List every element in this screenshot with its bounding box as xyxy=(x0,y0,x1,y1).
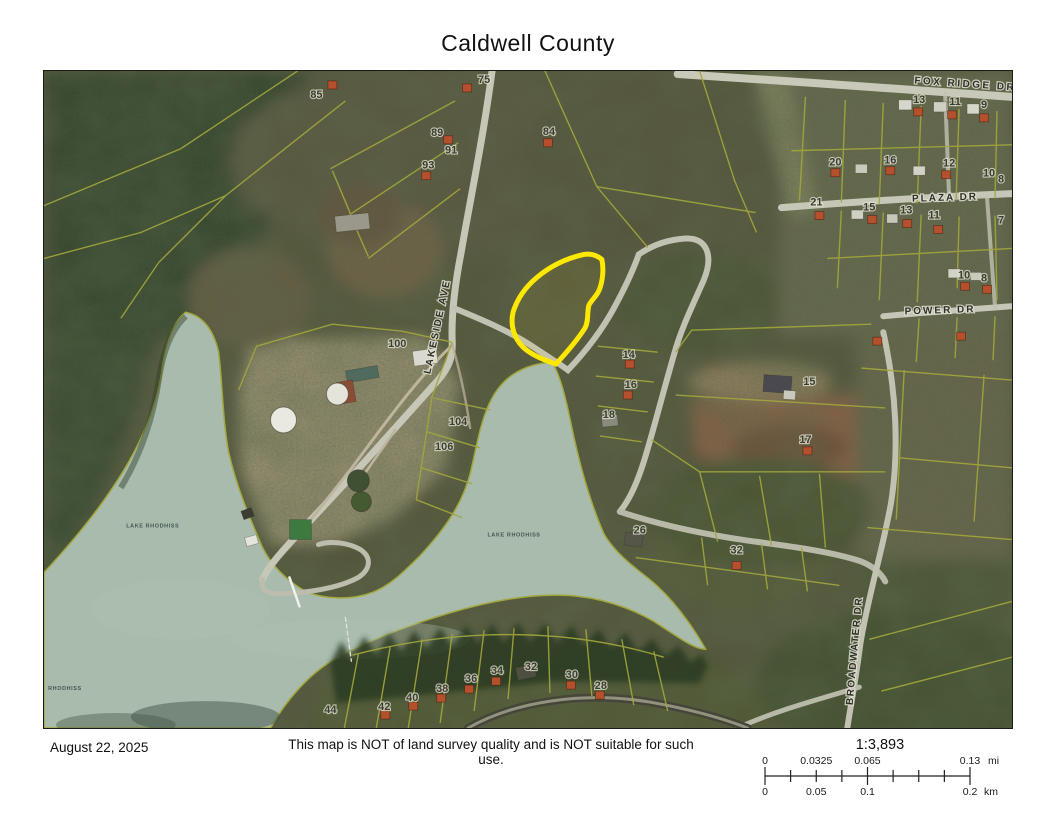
parcel-number-label: 8 xyxy=(998,174,1004,186)
house-icon xyxy=(623,391,632,399)
map-image: 8575899193841001041061311920161210821151… xyxy=(44,71,1012,728)
parcel-number-label: 13 xyxy=(900,205,912,217)
house-icon xyxy=(983,285,992,293)
parcel-number-label: 12 xyxy=(943,158,955,170)
parcel-number-label: 93 xyxy=(422,160,434,172)
scale-km-label: 0.05 xyxy=(806,786,827,798)
parcel-number-label: 7 xyxy=(998,215,1004,227)
parcel-number-label: 104 xyxy=(449,416,468,428)
house-icon xyxy=(914,108,923,116)
scale-bar: 00.03250.0650.13mi00.050.10.2km xyxy=(757,752,1017,807)
parcel-number-label: 100 xyxy=(388,338,406,350)
building xyxy=(289,520,311,540)
scale-mile-label: 0 xyxy=(762,755,768,767)
parcel-number-label: 36 xyxy=(465,673,477,685)
house-icon xyxy=(444,136,453,144)
parcel-number-label: 15 xyxy=(803,376,815,388)
parcel-number-label: 40 xyxy=(406,692,418,704)
parcel-number-label: 91 xyxy=(445,145,457,157)
parcel-number-label: 44 xyxy=(324,704,337,716)
house-icon xyxy=(625,360,634,368)
parcel-number-label: 15 xyxy=(863,202,875,214)
storage-tank xyxy=(271,407,297,433)
house-icon xyxy=(803,447,812,455)
parcel-number-label: 32 xyxy=(525,661,537,673)
parcel-number-label: 75 xyxy=(478,74,490,86)
house-icon xyxy=(886,167,895,175)
map-date: August 22, 2025 xyxy=(50,740,148,755)
building xyxy=(887,214,898,223)
parcel-number-label: 18 xyxy=(603,409,615,421)
house-icon xyxy=(903,220,912,228)
house-icon xyxy=(732,562,741,570)
parcel-number-label: 11 xyxy=(928,210,940,222)
parcel-number-label: 14 xyxy=(623,349,636,361)
building xyxy=(967,104,979,114)
house-icon xyxy=(873,337,882,345)
house-icon xyxy=(543,139,552,147)
building xyxy=(899,100,912,110)
house-icon xyxy=(328,81,337,89)
building xyxy=(783,390,796,400)
parcel-number-label: 16 xyxy=(884,155,896,167)
house-icon xyxy=(942,171,951,179)
parcel-number-label: 34 xyxy=(491,665,504,677)
map-frame: 8575899193841001041061311920161210821151… xyxy=(43,70,1013,729)
parcel-number-label: 13 xyxy=(913,94,925,106)
parcel-number-label: 30 xyxy=(566,669,578,681)
building xyxy=(934,102,947,112)
house-icon xyxy=(961,282,970,290)
parcel-number-label: 32 xyxy=(730,545,742,557)
house-icon xyxy=(934,226,943,234)
scale-mile-label: 0.13 xyxy=(960,755,981,767)
parcel-number-label: 8 xyxy=(981,272,987,284)
storage-tank xyxy=(326,383,348,405)
scale-mile-unit: mi xyxy=(988,755,999,767)
building xyxy=(913,166,925,175)
road-name-label: PLAZA DR xyxy=(912,191,978,204)
house-icon xyxy=(595,691,604,699)
house-icon xyxy=(815,212,824,220)
house-icon xyxy=(463,84,472,92)
water-name-label: LAKE RHODHISS xyxy=(126,524,179,530)
scale-bar-graphic: 00.03250.0650.13mi00.050.10.2km xyxy=(757,752,1017,802)
parcel-number-label: 21 xyxy=(810,197,822,209)
water-name-label: LAKE RHODHISS xyxy=(487,533,540,539)
house-icon xyxy=(566,681,575,689)
scale-km-label: 0.2 xyxy=(963,786,978,798)
map-print-page: Caldwell County xyxy=(0,0,1056,816)
parcel-number-label: 85 xyxy=(310,89,322,101)
house-icon xyxy=(980,114,989,122)
parcel-number-label: 38 xyxy=(436,683,448,695)
parcel-number-label: 10 xyxy=(983,168,995,180)
parcel-number-label: 10 xyxy=(958,269,970,281)
building xyxy=(971,272,982,280)
scale-km-label: 0 xyxy=(762,786,768,798)
scale-km-label: 0.1 xyxy=(860,786,875,798)
scale-mile-label: 0.0325 xyxy=(800,755,832,767)
storage-tank xyxy=(351,492,371,512)
disclaimer-text: This map is NOT of land survey quality a… xyxy=(276,737,706,767)
building xyxy=(855,164,867,173)
building xyxy=(335,213,370,232)
parcel-number-label: 42 xyxy=(378,701,390,713)
house-icon xyxy=(948,111,957,119)
parcel-number-label: 106 xyxy=(435,441,453,453)
house-icon xyxy=(465,685,474,693)
house-icon xyxy=(492,677,501,685)
house-icon xyxy=(868,216,877,224)
parcel-number-label: 28 xyxy=(595,680,607,692)
scale-mile-label: 0.065 xyxy=(854,755,880,767)
parcel-number-label: 20 xyxy=(829,157,841,169)
parcel-number-label: 89 xyxy=(431,127,443,139)
parcel-number-label: 26 xyxy=(634,525,646,537)
house-icon xyxy=(831,169,840,177)
parcel-number-label: 16 xyxy=(625,379,637,391)
parcel-number-label: 17 xyxy=(799,434,811,446)
storage-tank xyxy=(347,470,369,492)
scale-km-unit: km xyxy=(984,786,998,798)
house-icon xyxy=(437,694,446,702)
parcel-number-label: 9 xyxy=(981,99,987,111)
building xyxy=(851,210,863,219)
house-icon xyxy=(957,332,966,340)
water-name-label: RHODHISS xyxy=(48,686,82,692)
scale-ratio: 1:3,893 xyxy=(800,737,960,753)
page-title: Caldwell County xyxy=(0,30,1056,57)
parcel-number-label: 84 xyxy=(543,126,556,138)
parcel-number-label: 11 xyxy=(949,96,961,108)
house-icon xyxy=(422,172,431,180)
